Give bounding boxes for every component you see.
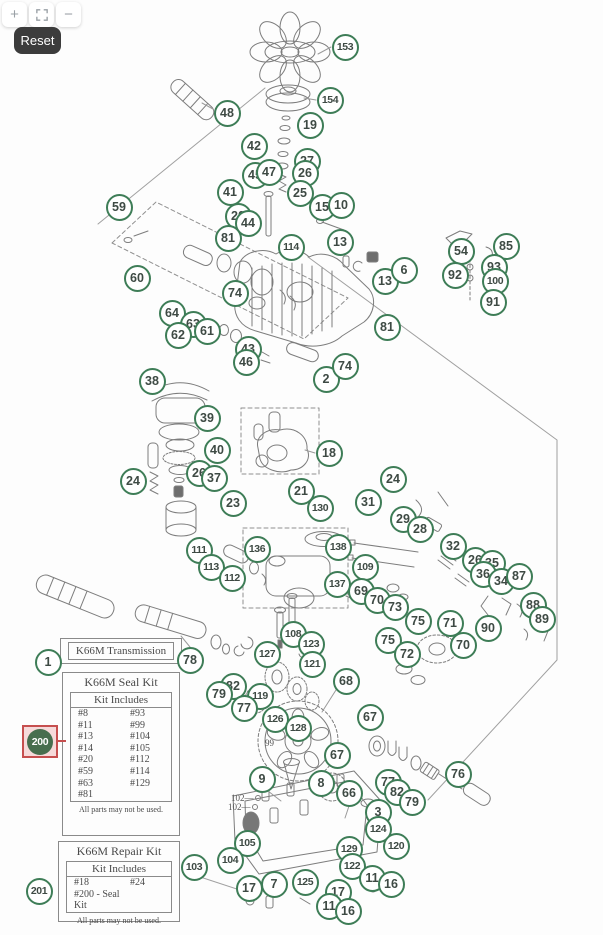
part-callout-39[interactable]: 39 xyxy=(194,405,221,432)
part-callout-112[interactable]: 112 xyxy=(219,565,246,592)
seal-kit-row: #11#99 xyxy=(71,720,171,732)
part-callout-38[interactable]: 38 xyxy=(139,368,166,395)
part-callout-137[interactable]: 137 xyxy=(324,571,351,598)
minus-icon: − xyxy=(64,6,73,23)
part-callout-136[interactable]: 136 xyxy=(244,536,271,563)
seal-kit-row: #13#104 xyxy=(71,731,171,743)
part-callout-114[interactable]: 114 xyxy=(278,234,305,261)
part-callout-40[interactable]: 40 xyxy=(204,437,231,464)
seal-kit-title: K66M Seal Kit xyxy=(63,673,179,690)
part-callout-6[interactable]: 6 xyxy=(391,257,418,284)
seal-kit-row: #63#129 xyxy=(71,778,171,790)
part-callout-37[interactable]: 37 xyxy=(201,465,228,492)
part-callout-23[interactable]: 23 xyxy=(220,490,247,517)
plus-icon: + xyxy=(10,6,19,23)
seal-kit-items: #8#93#11#99#13#104#14#105#20#112#59#114#… xyxy=(71,708,171,801)
part-callout-77[interactable]: 77 xyxy=(231,695,258,722)
part-callout-67[interactable]: 67 xyxy=(357,704,384,731)
seal-kit-footer: All parts may not be used. xyxy=(63,804,179,816)
part-callout-103[interactable]: 103 xyxy=(181,854,208,881)
part-callout-31[interactable]: 31 xyxy=(355,489,382,516)
part-callout-8[interactable]: 8 xyxy=(308,770,335,797)
fullscreen-button[interactable] xyxy=(29,2,54,27)
part-callout-79[interactable]: 79 xyxy=(399,789,426,816)
part-callout-7[interactable]: 7 xyxy=(261,871,288,898)
seal-kit-box: K66M Seal Kit Kit Includes #8#93#11#99#1… xyxy=(62,672,180,836)
seal-kit-row: #20#112 xyxy=(71,754,171,766)
seal-kit-table: Kit Includes #8#93#11#99#13#104#14#105#2… xyxy=(70,692,172,802)
part-callout-75[interactable]: 75 xyxy=(405,608,432,635)
part-callout-70[interactable]: 70 xyxy=(450,632,477,659)
seal-kit-row: #14#105 xyxy=(71,743,171,755)
part-text-label: 102— xyxy=(228,802,251,812)
repair-kit-row: #200 - Seal Kit xyxy=(67,889,171,912)
part-callout-47[interactable]: 47 xyxy=(256,159,283,186)
part-callout-60[interactable]: 60 xyxy=(124,265,151,292)
part-callout-67[interactable]: 67 xyxy=(324,742,351,769)
part-callout-72[interactable]: 72 xyxy=(394,641,421,668)
zoom-out-button[interactable]: − xyxy=(56,2,81,27)
part-callout-1[interactable]: 1 xyxy=(35,649,62,676)
part-callout-24[interactable]: 24 xyxy=(380,466,407,493)
zoom-in-button[interactable]: + xyxy=(2,2,27,27)
repair-kit-items: #18#24#200 - Seal Kit xyxy=(67,877,171,912)
part-callout-200[interactable]: 200 xyxy=(27,729,53,755)
part-callout-16[interactable]: 16 xyxy=(335,898,362,925)
part-callout-48[interactable]: 48 xyxy=(214,100,241,127)
part-callout-42[interactable]: 42 xyxy=(241,133,268,160)
part-callout-104[interactable]: 104 xyxy=(217,847,244,874)
part-callout-130[interactable]: 130 xyxy=(307,495,334,522)
part-callout-91[interactable]: 91 xyxy=(480,289,507,316)
part-callout-59[interactable]: 59 xyxy=(106,194,133,221)
part-text-label: 99 xyxy=(265,738,274,748)
seal-kit-header: Kit Includes xyxy=(71,693,171,708)
part-callout-28[interactable]: 28 xyxy=(407,516,434,543)
repair-kit-table: Kit Includes #18#24#200 - Seal Kit xyxy=(66,861,172,913)
highlight-connector-line xyxy=(58,740,66,742)
part-callout-74[interactable]: 74 xyxy=(332,353,359,380)
part-callout-89[interactable]: 89 xyxy=(529,606,556,633)
part-callout-121[interactable]: 121 xyxy=(299,651,326,678)
part-callout-24[interactable]: 24 xyxy=(120,468,147,495)
part-callout-62[interactable]: 62 xyxy=(165,322,192,349)
parts-diagram-viewer: 1531544819422726454725411510592044811141… xyxy=(0,0,603,935)
transmission-label-box: K66M Transmission xyxy=(60,638,182,664)
part-callout-19[interactable]: 19 xyxy=(297,112,324,139)
part-callout-120[interactable]: 120 xyxy=(383,833,410,860)
part-callout-154[interactable]: 154 xyxy=(317,87,344,114)
part-callout-90[interactable]: 90 xyxy=(475,615,502,642)
part-callout-18[interactable]: 18 xyxy=(316,440,343,467)
part-callout-76[interactable]: 76 xyxy=(445,761,472,788)
part-callout-9[interactable]: 9 xyxy=(249,766,276,793)
part-callout-87[interactable]: 87 xyxy=(506,563,533,590)
seal-kit-row: #8#93 xyxy=(71,708,171,720)
part-callout-109[interactable]: 109 xyxy=(352,554,379,581)
reset-button[interactable]: Reset xyxy=(14,27,61,54)
part-callout-54[interactable]: 54 xyxy=(448,238,475,265)
part-callout-68[interactable]: 68 xyxy=(333,668,360,695)
seal-kit-row: #59#114 xyxy=(71,766,171,778)
part-callout-46[interactable]: 46 xyxy=(233,349,260,376)
repair-kit-header: Kit Includes xyxy=(67,862,171,877)
part-callout-74[interactable]: 74 xyxy=(222,280,249,307)
part-callout-81[interactable]: 81 xyxy=(374,314,401,341)
part-callout-153[interactable]: 153 xyxy=(332,34,359,61)
part-callout-201[interactable]: 201 xyxy=(26,878,53,905)
part-callout-138[interactable]: 138 xyxy=(325,534,352,561)
part-callout-73[interactable]: 73 xyxy=(382,594,409,621)
part-callout-16[interactable]: 16 xyxy=(378,871,405,898)
part-callout-81[interactable]: 81 xyxy=(215,225,242,252)
part-callout-17[interactable]: 17 xyxy=(236,875,263,902)
part-callout-79[interactable]: 79 xyxy=(206,681,233,708)
part-callout-41[interactable]: 41 xyxy=(217,179,244,206)
part-callout-128[interactable]: 128 xyxy=(285,715,312,742)
part-callout-127[interactable]: 127 xyxy=(254,641,281,668)
seal-kit-row: #81 xyxy=(71,789,171,801)
highlighted-part-marker[interactable]: 200 xyxy=(22,725,58,758)
part-callout-13[interactable]: 13 xyxy=(327,229,354,256)
repair-kit-row: #18#24 xyxy=(67,877,171,889)
part-callout-125[interactable]: 125 xyxy=(292,869,319,896)
transmission-title: K66M Transmission xyxy=(68,642,174,660)
fullscreen-icon xyxy=(36,9,48,21)
repair-kit-box: K66M Repair Kit Kit Includes #18#24#200 … xyxy=(58,841,180,922)
part-callout-66[interactable]: 66 xyxy=(336,780,363,807)
repair-kit-title: K66M Repair Kit xyxy=(59,842,179,859)
part-callout-78[interactable]: 78 xyxy=(177,647,204,674)
part-callout-10[interactable]: 10 xyxy=(328,192,355,219)
part-callout-61[interactable]: 61 xyxy=(194,318,221,345)
part-callout-92[interactable]: 92 xyxy=(442,262,469,289)
repair-kit-footer: All parts may not be used. xyxy=(59,915,179,927)
